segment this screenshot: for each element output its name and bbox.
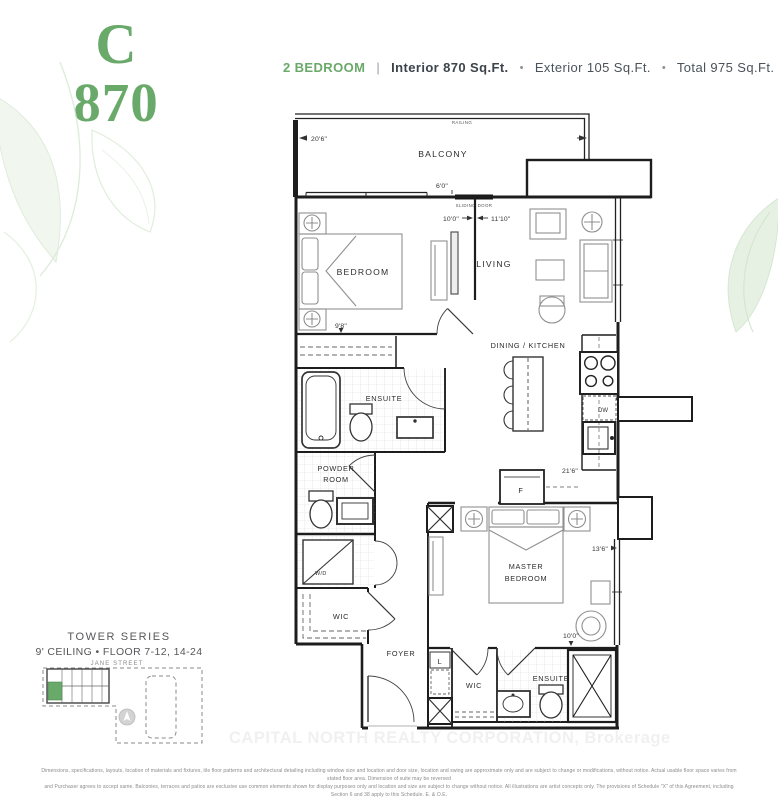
powder-label-1: POWDER: [317, 464, 354, 473]
bedroom-label: BEDROOM: [337, 267, 390, 277]
unit-location-highlight: [48, 682, 62, 700]
leaf-decor-right: [728, 198, 778, 332]
wic-2: WIC: [450, 648, 494, 717]
bedroom-door-leaf: [448, 309, 474, 335]
master-width-dimension: 10'0": [563, 633, 579, 646]
balcony-width-dimension: 20'6": [299, 135, 587, 143]
svg-text:20'6": 20'6": [311, 136, 327, 143]
building-footprint: [47, 669, 109, 703]
master-depth-dimension: 13'6": [592, 546, 617, 553]
reading-chair: [576, 611, 606, 641]
foyer: FOYER: [368, 649, 417, 726]
living-room: LIVING 11'10": [476, 209, 612, 323]
balcony-door-dimension: 6'0": [436, 183, 452, 194]
kitchen: DINING / KITCHEN DW: [491, 337, 618, 504]
kitchen-run-dimension: 21'6": [546, 468, 580, 487]
balcony-label: BALCONY: [418, 149, 467, 159]
dining-kitchen-label: DINING / KITCHEN: [491, 341, 566, 350]
fridge-label: F: [518, 486, 523, 495]
fridge: F: [500, 470, 544, 504]
master-ensuite: ENSUITE: [497, 648, 616, 722]
wd-label: W/D: [315, 571, 327, 577]
disclaimer-line-1: Dimensions, specifications, layouts, loc…: [38, 767, 740, 783]
structural-column: [428, 698, 452, 724]
floorplan-drawing: RAILING BALCONY 20'6" 6'0" SLIDING DOOR: [0, 0, 778, 800]
bedroom-closet: [300, 347, 392, 355]
linen-closet: L: [428, 652, 452, 724]
compass-icon: [119, 709, 135, 725]
tv-panel: [451, 232, 458, 294]
svg-text:21'6": 21'6": [562, 468, 578, 475]
svg-text:10'0": 10'0": [563, 633, 579, 640]
disclaimer-line-2: and Purchaser agrees to accept same. Bal…: [38, 783, 740, 799]
ensuite-label: ENSUITE: [366, 394, 403, 403]
structural-column: [427, 506, 453, 532]
ceiling-floors: 9' CEILING • FLOOR 7-12, 14-24: [35, 646, 202, 658]
entry-door-swing: [368, 676, 414, 722]
living-width-dimension: 11'10": [477, 216, 511, 223]
dishwasher-label: DW: [598, 408, 608, 414]
wic-door-leaf: [368, 592, 395, 619]
svg-text:13'6": 13'6": [592, 546, 608, 553]
island: [504, 357, 543, 431]
svg-text:6'0": 6'0": [436, 183, 448, 190]
laundry-door-swing: [375, 541, 397, 563]
railing-label: RAILING: [452, 120, 473, 125]
wic-door-swing: [368, 619, 395, 630]
balcony-wall: [293, 120, 298, 197]
keyplan: TOWER SERIES 9' CEILING • FLOOR 7-12, 14…: [35, 631, 202, 743]
master-label-1: MASTER: [509, 562, 544, 571]
master-ensuite-label: ENSUITE: [533, 674, 570, 683]
master-bedroom: MASTER BEDROOM 13'6" 10'0": [427, 506, 617, 646]
wic2-door-leaf: [450, 648, 477, 675]
stove: [580, 352, 618, 394]
bedroom-door-swing: [437, 309, 448, 335]
wic2-label: WIC: [466, 681, 482, 690]
bedroom-width-dimension: 10'0": [443, 216, 473, 223]
wic-label: WIC: [333, 612, 349, 621]
master-label-2: BEDROOM: [505, 574, 548, 583]
powder-room: POWDER ROOM: [298, 453, 376, 533]
ensuite-main: ENSUITE: [298, 368, 446, 451]
future-phase-outline: [146, 676, 176, 738]
brokerage-watermark: CAPITAL NORTH REALTY CORPORATION, Broker…: [229, 729, 671, 748]
svg-text:10'0": 10'0": [443, 216, 459, 223]
leaf-decor-top-left: [0, 62, 155, 342]
powder-label-2: ROOM: [323, 475, 349, 484]
lounge-chair: [539, 297, 565, 323]
dresser: [431, 241, 447, 300]
bedroom-depth-dimension: 9'8": [335, 323, 347, 333]
wic-1: WIC: [303, 592, 395, 638]
shower: [568, 650, 616, 722]
street-label: JANE STREET: [91, 661, 144, 667]
floorplan-sheet: C 870 2 BEDROOM | Interior 870 Sq.Ft. • …: [0, 0, 778, 800]
laundry-closet: W/D: [298, 536, 398, 586]
side-table: [591, 581, 610, 604]
series-title: TOWER SERIES: [67, 631, 170, 643]
foyer-label: FOYER: [387, 649, 416, 658]
coffee-table: [536, 260, 564, 280]
living-label: LIVING: [476, 259, 511, 269]
wic2-door-swing: [477, 648, 488, 675]
legal-disclaimer: Dimensions, specifications, layouts, loc…: [38, 767, 740, 799]
dresser: [429, 537, 443, 595]
master-bed: [461, 507, 590, 603]
linen-label: L: [438, 657, 443, 666]
svg-text:11'10": 11'10": [491, 216, 511, 223]
